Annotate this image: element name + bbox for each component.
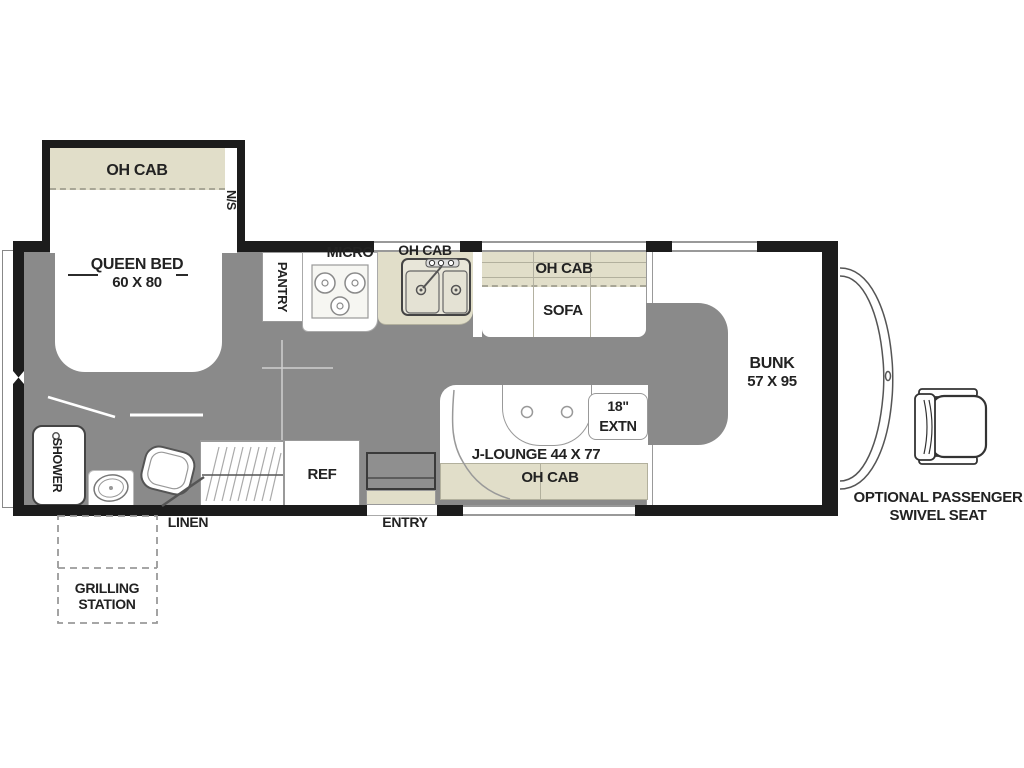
wall-bottom-2 — [437, 505, 463, 516]
pantry-label: PANTRY — [276, 253, 290, 321]
slide-wall-top — [42, 140, 245, 148]
swivel-label-1: OPTIONAL PASSENGER — [853, 489, 1023, 505]
extn-size-label: 18" — [593, 399, 643, 413]
queen-bed-size-label: 60 X 80 — [87, 274, 187, 290]
kitchen-counter — [302, 252, 378, 332]
bedroom-ohcab-label: OH CAB — [87, 162, 187, 180]
window-lounge — [463, 505, 635, 516]
wall-top-4 — [646, 241, 672, 252]
grilling-label-1: GRILLING — [67, 580, 147, 595]
entry-label: ENTRY — [375, 514, 435, 530]
bath-sink-counter — [88, 470, 134, 508]
sofa-ohcab-label: OH CAB — [524, 261, 604, 276]
linen-wardrobe — [200, 440, 284, 509]
swivel-seat-icon — [915, 389, 986, 464]
wall-bottom-3 — [635, 505, 838, 516]
window-sofa — [482, 241, 646, 252]
slide-wall-left — [42, 140, 50, 252]
lounge-table — [502, 385, 592, 446]
queen-bed-label: QUEEN BED — [77, 256, 197, 274]
counter-gap — [473, 252, 482, 337]
bunk-label: BUNK — [732, 356, 812, 372]
window-bunk — [672, 241, 757, 252]
swivel-label-2: SWIVEL SEAT — [853, 507, 1023, 523]
entry-landing — [366, 490, 436, 505]
floor-tongue — [646, 303, 728, 445]
extn-label: EXTN — [593, 420, 643, 435]
grilling-label-2: STATION — [67, 596, 147, 611]
sofa-label: SOFA — [533, 302, 593, 318]
wall-right — [822, 241, 838, 516]
j-lounge-label: J-LOUNGE 44 X 77 — [466, 447, 606, 461]
shower-label: SHOWER — [50, 431, 64, 499]
micro-label: MICRO — [320, 247, 380, 260]
linen-label: LINEN — [158, 514, 218, 530]
rv-floorplan: OH CAB N/S QUEEN BED 60 X 80 PANTRY MICR… — [0, 0, 1024, 768]
wall-top-3 — [460, 241, 482, 252]
nightstand-label: N/S — [223, 180, 239, 220]
sofa-ohcab-shelf2 — [482, 277, 646, 278]
bunk-size-label: 57 X 95 — [732, 373, 812, 389]
sink-counter — [378, 252, 473, 325]
wall-left — [13, 241, 24, 516]
entry-step — [366, 452, 436, 490]
sink-ohcab-label: OH CAB — [390, 243, 460, 257]
ref-label: REF — [292, 466, 352, 482]
lounge-ohcab-label: OH CAB — [510, 470, 590, 485]
entry-step-line — [368, 477, 434, 479]
cab-nose-icon — [840, 268, 893, 489]
